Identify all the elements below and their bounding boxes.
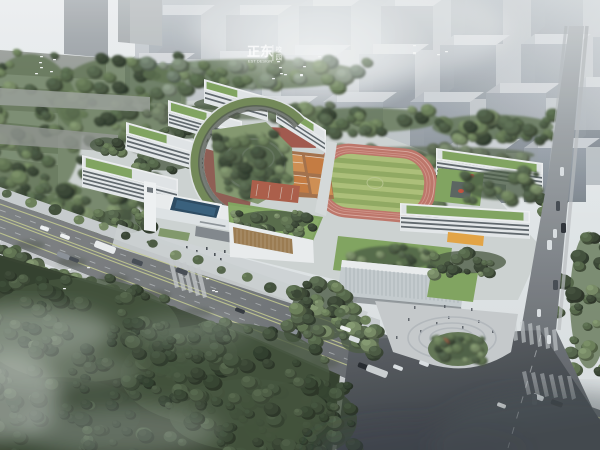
svg-text:EST DESIGN: EST DESIGN xyxy=(248,59,272,64)
svg-text:园: 园 xyxy=(276,54,283,62)
svg-text:正东: 正东 xyxy=(247,44,273,59)
svg-text:校: 校 xyxy=(276,45,283,54)
